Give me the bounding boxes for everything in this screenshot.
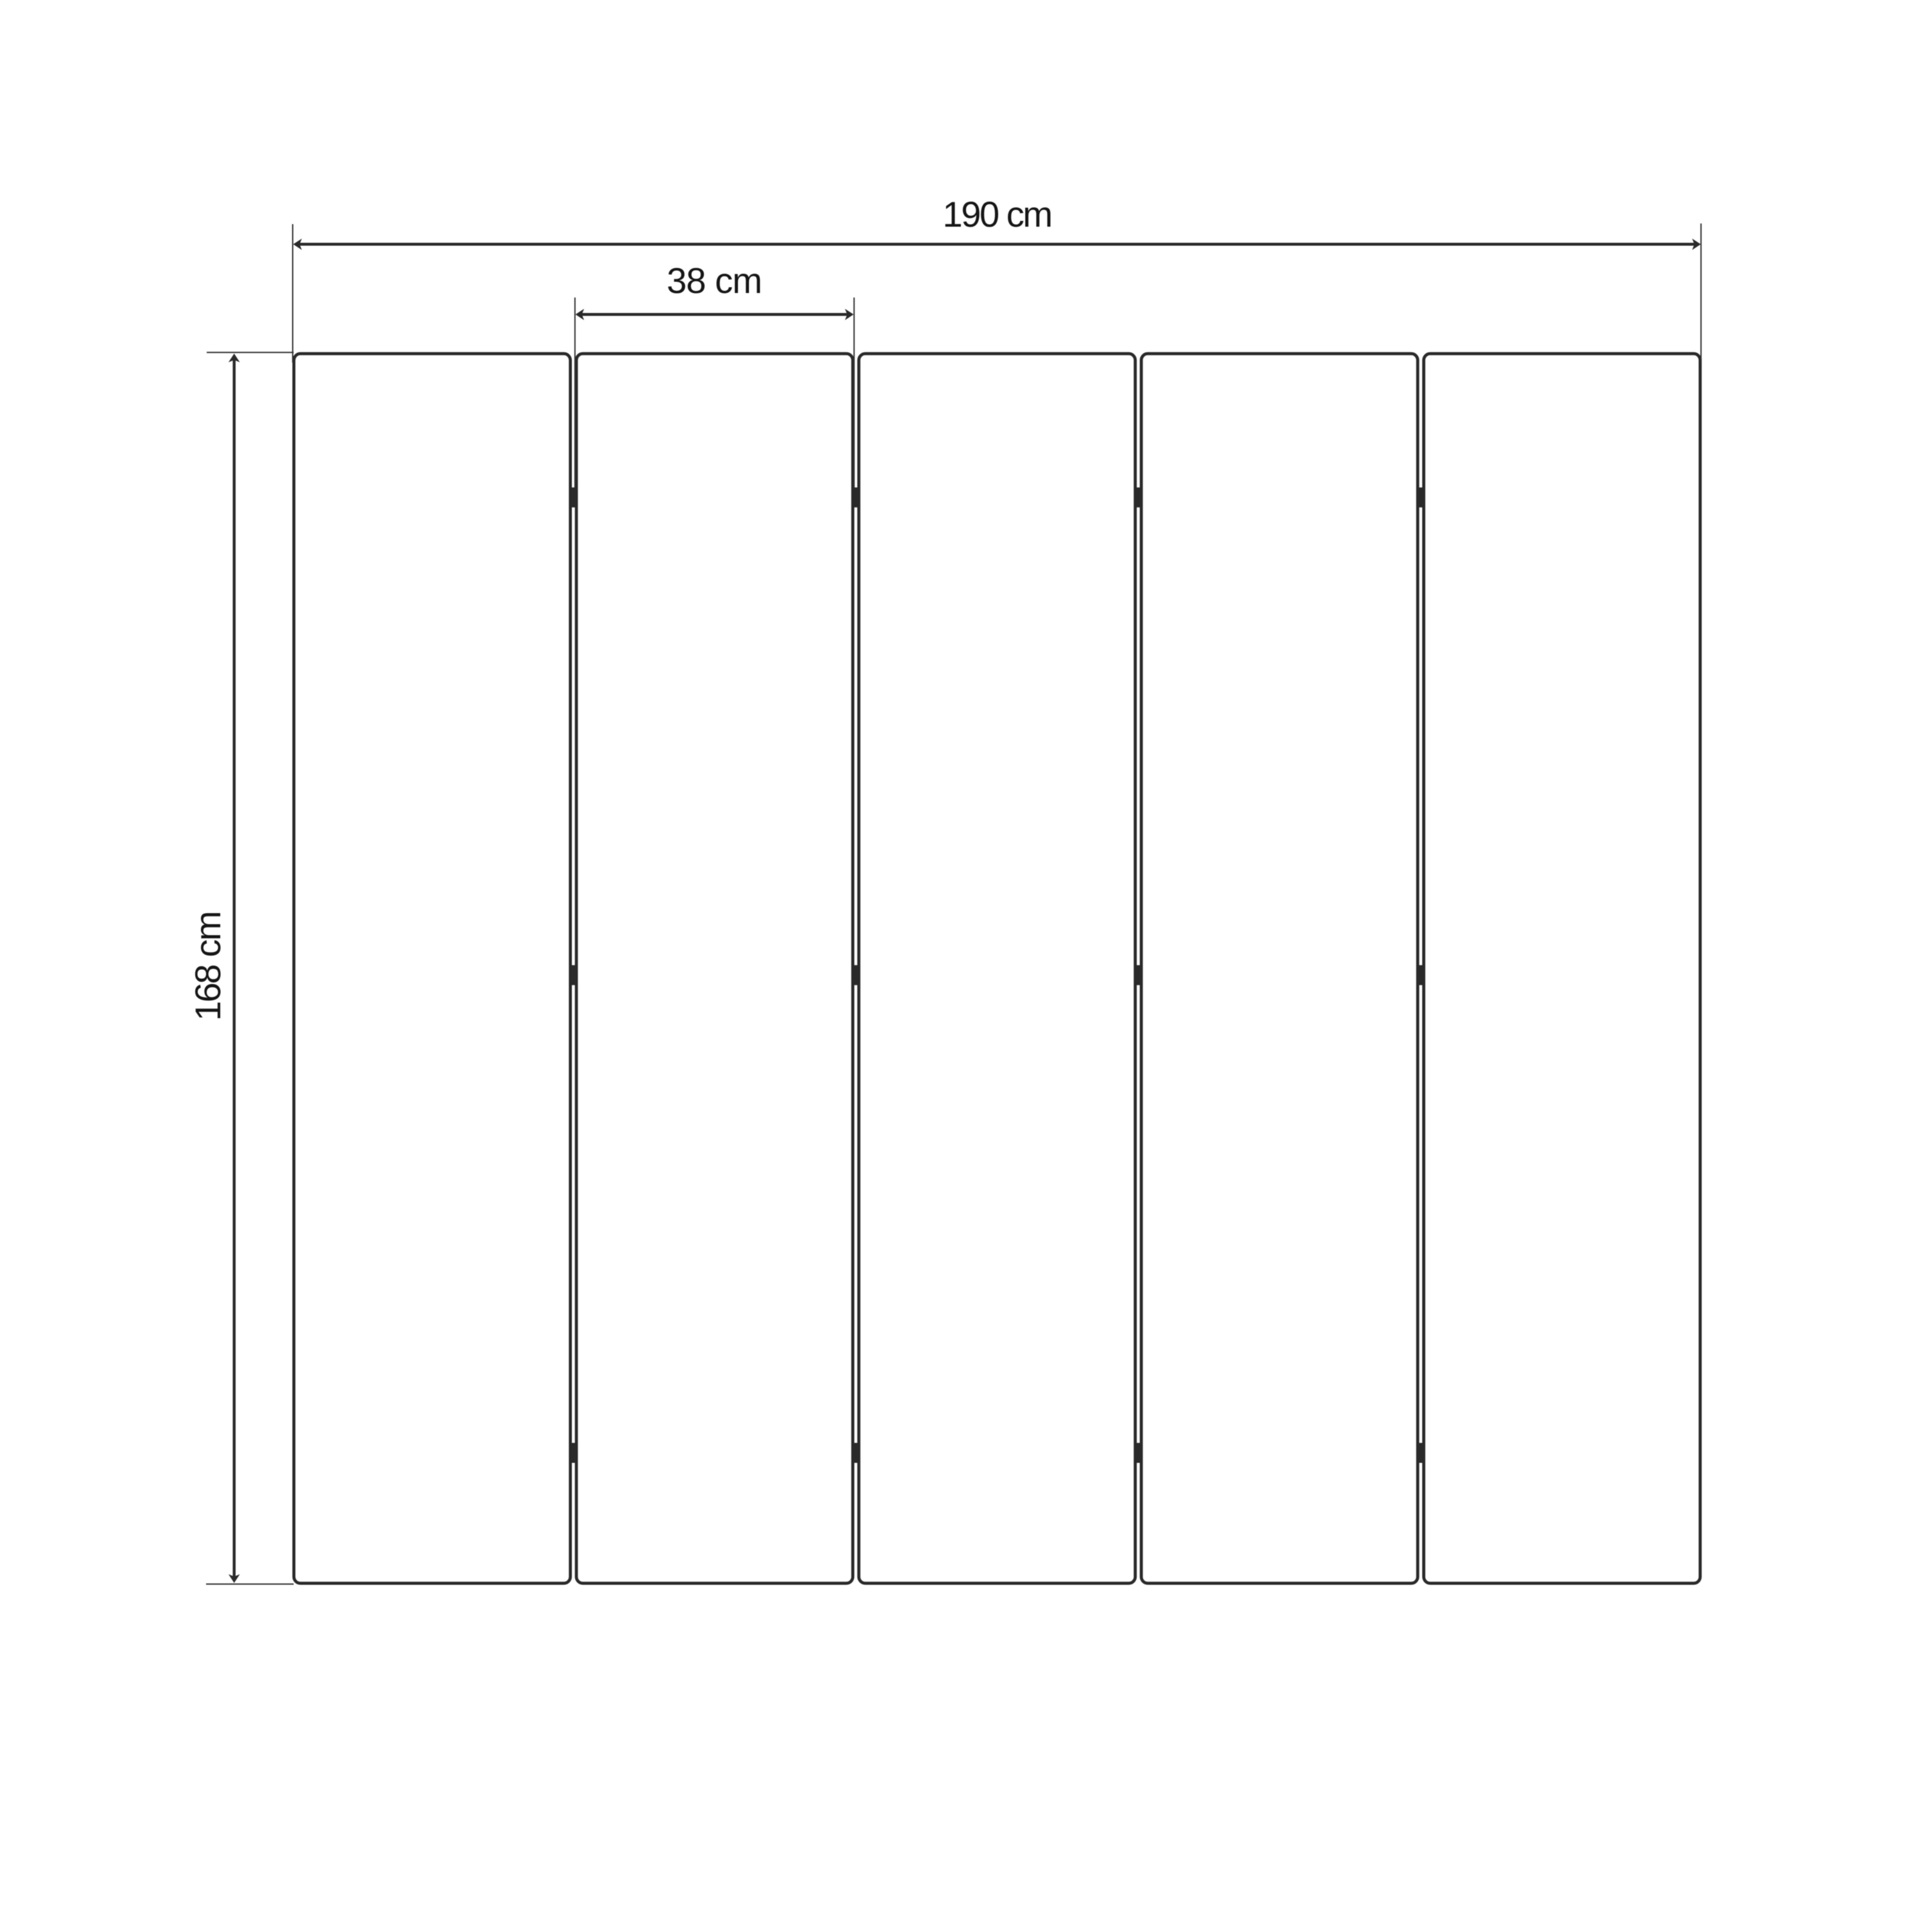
- svg-text:38 cm: 38 cm: [667, 260, 762, 301]
- svg-text:168 cm: 168 cm: [187, 913, 228, 1021]
- svg-text:190 cm: 190 cm: [943, 194, 1052, 234]
